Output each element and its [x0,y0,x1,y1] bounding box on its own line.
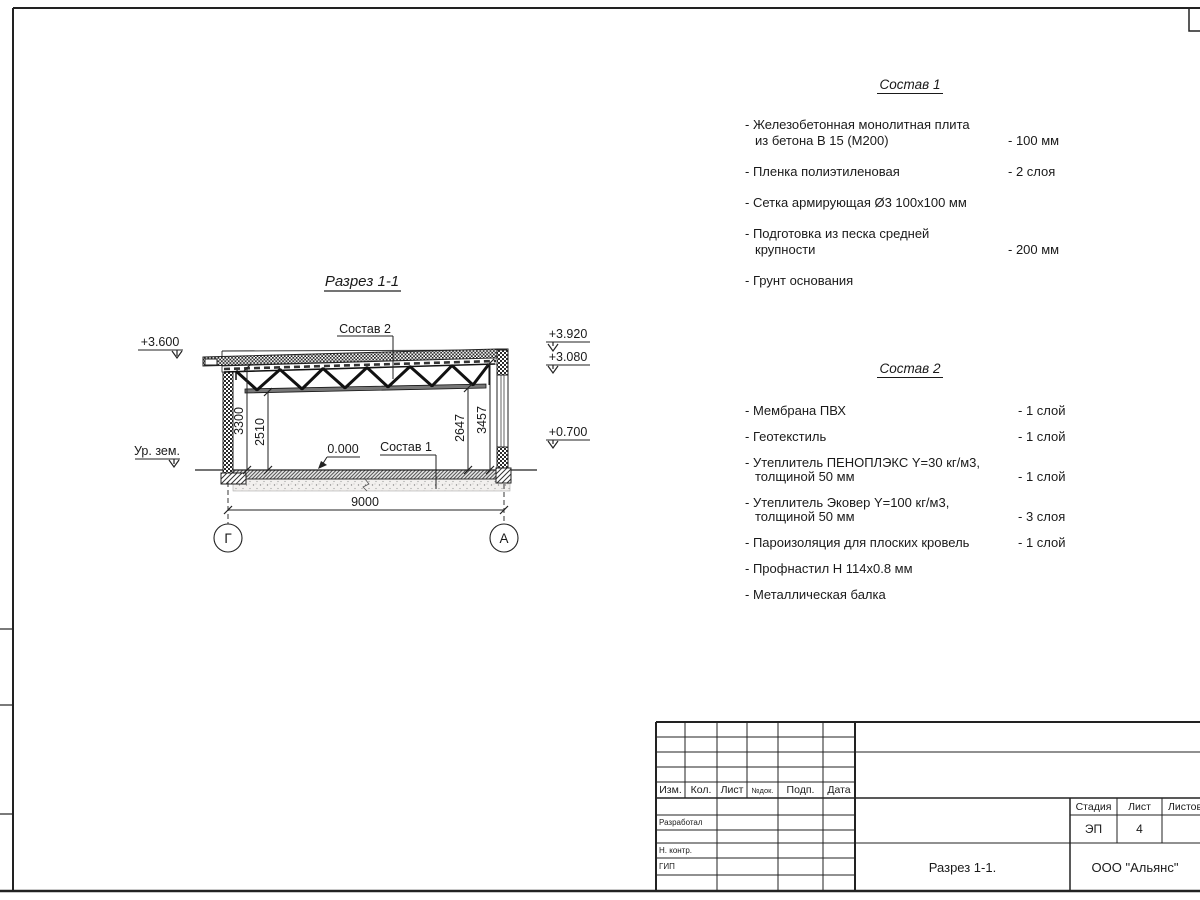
elevation-3920: +3.920 [549,327,588,341]
list-item-text: - Металлическая балка [755,588,1075,602]
list-item-value: - 1 слой [1018,536,1066,550]
list-item-text: - Сетка армирующая Ø3 100х100 мм [755,195,1075,211]
list-item: - Пленка полиэтиленовая- 2 слоя [745,164,1075,180]
sand-layer [233,479,510,491]
list-item: - Сетка армирующая Ø3 100х100 мм [745,195,1075,211]
right-wall-parapet [497,349,508,375]
arrow-0700 [548,440,558,448]
arrow-ground [169,459,179,467]
tb-header-list: Лист [717,782,747,798]
dim-2647: 2647 [453,414,467,442]
roof-edge-gutter [205,359,217,365]
tb-header-podp: Подп. [778,782,823,798]
list-item: - Геотекстиль- 1 слой [745,430,1075,444]
list-item-value: - 1 слой [1018,404,1066,418]
drawing-sheet: Разрез 1-1 Состав 2 Состав 1 0.000 Ур. з… [0,0,1200,900]
right-foundation [496,468,511,483]
list-item: - Грунт основания [745,273,1075,289]
list-item-value: - 100 мм [1008,133,1059,149]
list-item: - Подготовка из песка средней крупности-… [745,226,1075,258]
list-item-value: - 3 слоя [1018,510,1065,524]
span-dimension [214,482,518,552]
label-sostav2: Состав 2 [339,322,391,336]
corner-stamp-notch [1189,8,1200,31]
list-item: - Утеплитель Эковер Y=100 кг/м3, толщино… [745,496,1075,524]
tb-stage-value: ЭП [1070,815,1117,843]
tb-company: ООО "Альянс" [1070,843,1200,891]
list-item-value: - 200 мм [1008,242,1059,258]
axis-letter-right: А [499,531,508,546]
list-item-text: - Грунт основания [755,273,1075,289]
label-zero-level: 0.000 [327,442,358,456]
list-item: - Мембрана ПВХ- 1 слой [745,404,1075,418]
tb-row-nkontr: Н. контр. [659,843,717,858]
list-item: - Пароизоляция для плоских кровель- 1 сл… [745,536,1075,550]
label-ground-level: Ур. зем. [134,444,180,458]
label-sostav1: Состав 1 [380,440,432,454]
zero-level-arrow [318,461,327,469]
arrow-3080 [548,365,558,373]
tb-header-kol: Кол. [685,782,717,798]
truss-bottom-chord [245,384,486,393]
tb-sheet-value: 4 [1117,815,1162,843]
composition-1-heading: Состав 1 [745,77,1075,92]
view-title: Разрез 1-1 [325,273,399,290]
tb-sheets-header: Листов [1162,798,1200,815]
elevation-0700: +0.700 [549,425,588,439]
dim-3300: 3300 [232,407,246,435]
composition-2-heading: Состав 2 [745,361,1075,376]
dim-9000: 9000 [351,495,379,509]
composition-list-2: - Мембрана ПВХ- 1 слой- Геотекстиль- 1 с… [745,404,1075,614]
left-foundation [221,473,246,484]
dim-2510: 2510 [253,418,267,446]
tb-stage-header: Стадия [1070,798,1117,815]
tb-header-ndok: №док. [747,782,778,798]
right-wall-sill [497,447,508,468]
axis-letter-left: Г [224,531,232,546]
list-item-value: - 1 слой [1018,430,1066,444]
tb-doc-title: Разрез 1-1. [855,843,1070,891]
list-item-value: - 2 слоя [1008,164,1055,180]
binding-margin-ticks [0,629,13,814]
arrow-3600 [172,350,182,358]
composition-list-1: - Железобетонная монолитная плита из бет… [745,117,1075,304]
list-item: - Утеплитель ПЕНОПЛЭКС Y=30 кг/м3, толщи… [745,456,1075,484]
right-window [497,375,508,447]
list-item-value: - 1 слой [1018,470,1066,484]
tb-sheet-header: Лист [1117,798,1162,815]
list-item: - Металлическая балка [745,588,1075,602]
section-drawing: Разрез 1-1 Состав 2 Состав 1 0.000 Ур. з… [134,273,590,552]
list-item: - Железобетонная монолитная плита из бет… [745,117,1075,149]
elevation-3080: +3.080 [549,350,588,364]
drawing-text: Разрез 1-1 Состав 2 Состав 1 0.000 Ур. з… [134,273,587,546]
list-item: - Профнастил Н 114х0.8 мм [745,562,1075,576]
tb-header-data: Дата [823,782,855,798]
list-item-text: - Профнастил Н 114х0.8 мм [755,562,1075,576]
dim-3457: 3457 [475,406,489,434]
elevation-3600: +3.600 [141,335,180,349]
tb-row-razrabotal: Разработал [659,815,717,830]
tb-row-gip: ГИП [659,858,717,875]
tb-header-izm: Изм. [656,782,685,798]
floor-slab [233,470,497,479]
